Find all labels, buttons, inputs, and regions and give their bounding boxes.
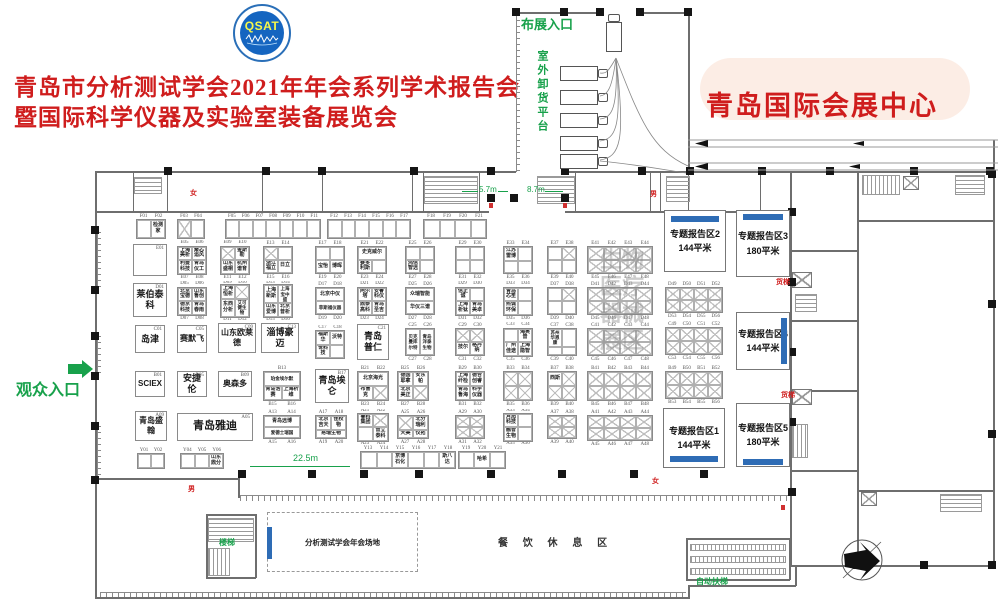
booth-cell: 珀金埃尔默	[264, 372, 300, 386]
booth-cell	[316, 247, 330, 260]
booth-cell	[470, 427, 484, 438]
booth-cell	[636, 386, 652, 400]
booth-cell	[620, 416, 636, 428]
event-title-line2: 暨国际科学仪器及实验室装备展览会	[14, 98, 398, 132]
booth-block: E37E38E39E40	[547, 240, 577, 280]
booth-id: C13	[288, 325, 296, 331]
booth-cell	[424, 452, 440, 468]
booth-grid: 西斯	[547, 371, 577, 401]
booth-id-labels: B53B54B55B56	[665, 399, 723, 405]
booth-cell: 艾可健生物	[235, 299, 249, 317]
booth-cell	[195, 454, 209, 468]
booth-cell: 北京宝德	[178, 288, 192, 302]
booth-grid: 苏州华恩康	[547, 328, 577, 356]
structural-column	[318, 167, 326, 175]
booth-cell	[372, 260, 386, 274]
event-title-line1: 青岛市分析测试学会2021年年会系列学术报告会	[14, 68, 520, 102]
booth-cell	[181, 454, 195, 468]
booth-cell	[330, 247, 344, 260]
booth-block: D05D06北京宝德山东鲁创德京科技青岛春雨D07D08	[177, 281, 207, 321]
booth-cell	[588, 428, 604, 440]
booth-cell: 江苏雷博	[504, 247, 518, 261]
booth-id: E01	[156, 246, 164, 252]
booth-block: F05F06F07F08F09F10F11	[225, 213, 321, 239]
booth-grid	[587, 415, 653, 441]
booth-id: D01	[155, 285, 164, 291]
booth-cell	[518, 386, 532, 400]
structural-column	[487, 470, 495, 478]
stage-bar	[743, 459, 783, 465]
map-label: 货梯	[776, 277, 790, 287]
booth-cell	[636, 428, 652, 440]
partition-wall	[97, 426, 101, 478]
wall	[95, 597, 690, 599]
wall	[789, 538, 791, 580]
booth-cell: 西斯	[548, 372, 562, 386]
booth-cell	[694, 372, 708, 385]
booth-grid	[665, 327, 723, 355]
booth-block: E05E06上海美析聚芯追风利曼科技青岛仪工E07E08	[177, 240, 207, 280]
booth-cell	[666, 300, 680, 312]
partition-wall	[97, 232, 101, 288]
booth-cell	[694, 288, 708, 300]
stair-hatch	[690, 568, 786, 575]
wall	[795, 565, 797, 586]
booth-block: Y01Y02	[137, 447, 165, 469]
booth-cell	[620, 372, 636, 386]
booth-block: C33C34海奥普广州佳途上海隐智C35C36	[503, 322, 533, 362]
structural-column	[684, 8, 692, 16]
booth-cell	[470, 260, 484, 273]
booth-cell: 沃特	[330, 331, 344, 345]
map-label: 女	[652, 476, 659, 486]
booth-cell	[330, 345, 344, 359]
booth-name: SCIEX	[136, 379, 164, 389]
structural-column	[920, 561, 928, 569]
booth-cell	[137, 220, 151, 238]
booth-cell	[604, 428, 620, 440]
booth-cell: 海奥普	[518, 329, 532, 343]
wall	[262, 172, 263, 211]
booth-block: A21A22睿科集团普立泰科A23A24	[357, 409, 389, 445]
booth-cell	[342, 220, 356, 238]
booth-cell	[178, 220, 191, 238]
structural-column	[638, 167, 646, 175]
booth-name: 青岛埃仑	[316, 375, 348, 397]
booth-id-labels: B39B40	[547, 401, 577, 407]
booth-cell: 福斯华	[316, 331, 330, 345]
wall	[167, 172, 168, 211]
booth-name: 奥森多	[221, 379, 249, 389]
booth-cell	[548, 416, 562, 427]
booth-id-labels: D15D16	[263, 318, 293, 321]
booth-cell: 鸿信智远	[406, 260, 420, 274]
booth-grid: 上海美析聚芯追风利曼科技青岛仪工	[177, 246, 207, 275]
zone-name: 专题报告区3	[738, 229, 788, 243]
elevator-box	[792, 389, 812, 405]
stair-hatch	[690, 556, 786, 563]
booth-cell	[518, 288, 532, 302]
booth-block: D49D50D51D52D53D54D55D56	[665, 281, 723, 319]
annual-meeting-area: 分析测试学会年会场地	[267, 512, 418, 572]
floor-plan-page: QSAT 青岛市分析测试学会2021年年会系列学术报告会 暨国际科学仪器及实验室…	[0, 0, 1000, 616]
booth-block: C37C38苏州华恩康C39C40	[547, 322, 577, 362]
booth-cell	[562, 260, 576, 273]
booth-cell: 北京中仪	[316, 288, 344, 301]
zone-name: 专题报告区1	[669, 424, 719, 438]
booth-block: F18F19F20F21	[423, 213, 487, 239]
watermark-line: 医疗	[590, 273, 654, 300]
booth-id: A05	[241, 415, 250, 421]
booth-cell	[708, 385, 722, 398]
booth-cell: 青岛圣吉	[372, 301, 386, 315]
booth-cell	[548, 386, 562, 400]
elevator-box	[861, 492, 877, 506]
booth-cell: 广州佳途	[504, 342, 518, 356]
structural-column	[988, 300, 996, 308]
booth-id-labels: A15A16	[263, 439, 301, 445]
booth-id-labels: B35B36	[503, 401, 533, 407]
booth-cell: 山东爱博	[264, 303, 278, 317]
booth-cell: 菲斯福仪器	[316, 301, 344, 314]
booth-name: 青岛普仁	[358, 331, 388, 353]
map-label: 室外卸货平台	[534, 50, 550, 134]
booth-cell	[666, 328, 680, 341]
booth-cell	[708, 288, 722, 300]
booth-cell	[604, 416, 620, 428]
booth-cell	[471, 220, 487, 238]
booth-name: 青岛雅迪	[191, 420, 239, 433]
structural-column	[410, 167, 418, 175]
booth-cell: 上海美析	[178, 247, 192, 261]
booth-cell: 博晖	[330, 260, 344, 273]
map-label: 餐 饮 休 息 区	[498, 534, 613, 549]
booth-cell	[562, 427, 576, 438]
booth-cell	[191, 220, 204, 238]
booth-id-labels: D11D12	[220, 318, 250, 321]
booth-cell: 仪拓	[413, 430, 428, 439]
map-label: 女	[190, 188, 197, 198]
booth-cell: 信正诚	[456, 288, 470, 302]
booth-id: C09	[245, 325, 253, 331]
booth-cell: 众瑞智能	[406, 288, 434, 301]
booth-cell	[620, 428, 636, 440]
booth-block: Y04Y05Y06山东鼎分	[180, 447, 224, 469]
booth-block: D21D22阿尔塔安睿科仪鼎泰高科青岛圣吉D23D24	[357, 281, 387, 321]
map-label: 自动扶梯	[696, 576, 728, 587]
booth-block: C17C18福斯华沃特世科技	[315, 325, 345, 359]
booth-cell	[666, 341, 680, 354]
booth-block: C29C30技尔格丹纳C31C32	[455, 322, 485, 362]
booth-block: D09D10上海恒析东西分析艾可健生物D11D12	[220, 281, 250, 321]
structural-column	[510, 194, 518, 202]
structural-column	[512, 8, 520, 16]
structural-column	[826, 167, 834, 175]
booth-block: B33B34B35B36	[503, 365, 533, 407]
partition-wall	[516, 14, 520, 172]
booth-block: C49C50C51C52C53C54C55C56	[665, 321, 723, 361]
booth-large: E01	[133, 244, 167, 276]
stair-hatch	[666, 176, 690, 202]
structural-column	[988, 561, 996, 569]
booth-cell	[562, 247, 576, 260]
booth-id-labels: B45B46B47B48	[587, 401, 653, 407]
booth-cell	[456, 260, 470, 273]
booth-cell: 贝克曼库尔特	[406, 329, 420, 355]
structural-column	[487, 194, 495, 202]
booth-grid: 北京中仪菲斯福仪器	[315, 287, 345, 315]
booth-cell	[694, 328, 708, 341]
wall	[686, 538, 688, 580]
booth-grid	[455, 415, 485, 439]
booth-grid: 贝克曼库尔特青岛洋泰生物	[405, 328, 435, 356]
map-label: 8.7m	[527, 185, 545, 194]
booth-cell	[373, 414, 388, 428]
structural-column	[91, 332, 99, 340]
booth-cell: 京博石化	[392, 452, 408, 468]
booth-cell: 德合创睿	[470, 372, 484, 386]
wall	[412, 172, 413, 211]
wall	[206, 577, 256, 579]
booth-cell: 赛多利斯	[358, 260, 372, 274]
booth-id-labels: C45C46C47C48	[587, 356, 653, 362]
booth-cell	[518, 301, 532, 315]
booth-cell	[604, 386, 620, 400]
zone-name: 专题报告区2	[670, 227, 720, 241]
booth-cell: 月旭科技	[504, 414, 518, 428]
wall	[640, 12, 689, 14]
stage-bar	[671, 216, 719, 222]
booth-block: E13E14浙江福立日立E15E16	[263, 240, 293, 280]
booth-cell	[253, 220, 266, 238]
booth-cell: 上海宝中盛	[278, 285, 292, 303]
qsat-logo-icon: QSAT	[233, 4, 291, 62]
booth-cell: 哈希	[474, 452, 489, 468]
booth-grid	[177, 219, 205, 239]
map-label: 楼梯	[219, 537, 235, 548]
booth-grid	[665, 287, 723, 313]
booth-cell	[470, 247, 484, 260]
booth-grid: 睿科集团普立泰科	[357, 413, 389, 442]
booth-id: A09	[155, 413, 164, 419]
wall	[688, 12, 690, 172]
booth-cell: 上海恒析	[221, 285, 235, 299]
booth-grid: 山东鼎分	[180, 453, 224, 469]
booth-cell	[548, 347, 562, 355]
booth-cell	[708, 372, 722, 385]
booth-cell: 北京普析	[278, 303, 292, 317]
booth-id-labels: E31E32	[455, 274, 485, 280]
booth-grid: 史克威尔赛多利斯	[357, 246, 387, 274]
fire-equipment-mark	[563, 203, 567, 208]
booth-id-labels: E35E36	[503, 274, 533, 280]
booth-cell	[708, 300, 722, 312]
booth-cell	[420, 260, 434, 274]
booth-cell	[694, 341, 708, 354]
wall	[255, 514, 257, 578]
structural-column	[91, 422, 99, 430]
wall	[206, 514, 256, 516]
booth-grid: 福斯华沃特世科技	[315, 330, 345, 359]
booth-id-labels: D23D24	[357, 316, 387, 322]
structural-column	[238, 470, 246, 478]
booth-cell	[328, 220, 342, 238]
booth-block: A25A26北分瑞利天美仪拓A27A28	[397, 409, 429, 445]
booth-id-labels: E15E16	[263, 274, 293, 280]
booth-id-labels: D31D32	[455, 316, 485, 322]
stair-hatch	[955, 175, 985, 195]
truck-icon	[560, 154, 598, 169]
booth-id: C21	[378, 326, 386, 332]
booth-cell	[562, 301, 576, 314]
booth-grid: 浙江福立日立	[263, 246, 293, 274]
wall	[790, 250, 857, 252]
booth-cell	[456, 247, 470, 260]
booth-grid: 上海恒析东西分析艾可健生物	[220, 284, 250, 317]
booth-cell	[266, 220, 279, 238]
booth-grid	[423, 219, 487, 239]
booth-cell	[470, 416, 484, 427]
booth-block: B49B50B51B52B53B54B55B56	[665, 365, 723, 405]
booth-grid	[327, 219, 411, 239]
structural-column	[596, 8, 604, 16]
booth-cell	[221, 247, 235, 261]
booth-grid: 宝怡博晖	[315, 246, 345, 274]
booth-cell: 上海隐智	[518, 342, 532, 356]
structural-column	[853, 561, 861, 569]
stair-hatch	[134, 177, 162, 194]
booth-id-labels: C31C32	[455, 356, 485, 362]
booth-cell	[588, 372, 604, 386]
booth-cell	[562, 386, 576, 400]
road-lines	[688, 140, 998, 170]
wall	[686, 538, 790, 540]
structural-column	[415, 470, 423, 478]
partition-wall	[100, 592, 686, 597]
booth-id-labels: E19E20	[315, 274, 345, 280]
booth-cell	[361, 452, 377, 468]
booth-block: A41A42A43A44A45A46A47A48	[587, 409, 653, 447]
truck-icon	[560, 66, 598, 81]
booth-id: C05	[196, 327, 204, 333]
structural-column	[686, 167, 694, 175]
booth-block: B13珀金埃尔默青岛浩赛上海析维B15B16	[263, 365, 301, 407]
booth-cell	[235, 285, 249, 299]
wall	[95, 171, 516, 173]
entrance-arrow-tip-icon	[82, 360, 93, 378]
elevator-box	[903, 176, 919, 190]
booth-block: B25B26德国耶拿安东帕北京美正B27B28	[397, 365, 429, 407]
booth-large: B05安捷伦	[177, 371, 207, 397]
watermark-line: 展区	[590, 327, 654, 354]
booth-large: C09山东欧莱德	[218, 323, 256, 353]
booth-cell	[369, 220, 383, 238]
truck-cab-icon	[598, 139, 608, 148]
booth-block: E09E10金斯勒山东盛桐杭州谱育E11E12	[220, 240, 250, 280]
booth-cell: 青岛浩赛	[264, 386, 282, 400]
booth-large: D01莱伯泰科	[133, 283, 167, 317]
booth-id-labels: D27D28	[405, 315, 435, 321]
wall	[790, 171, 792, 566]
booth-id-labels: A45A46A47A48	[587, 441, 653, 447]
booth-cell: 杭州谱育	[235, 260, 249, 274]
booth-cell	[420, 247, 434, 260]
booth-cell	[680, 385, 694, 398]
map-label: 男	[650, 189, 657, 199]
qsat-logo-inner: QSAT	[240, 11, 284, 55]
booth-cell: 山东鲁创	[192, 288, 206, 302]
truck-fan-curves	[600, 58, 688, 173]
booth-cell	[588, 416, 604, 428]
booth-grid: 信正诚上海析钛青岛美卓	[455, 287, 485, 316]
booth-cell: 普立泰科	[373, 427, 388, 441]
booth-name: 莱伯泰科	[134, 289, 166, 311]
wall	[322, 172, 323, 211]
truck-icon	[560, 113, 598, 128]
booth-cell: 青岛洋泰生物	[420, 329, 434, 355]
booth-block: D33D34青岛芯笙熙诚环保D35D36	[503, 281, 533, 321]
booth-cell: 北京吉天	[316, 416, 331, 430]
booth-cell: 青岛美卓	[470, 301, 484, 315]
qsat-logo-text: QSAT	[245, 20, 279, 32]
north-arrow-icon	[842, 540, 882, 580]
booth-grid	[547, 287, 577, 315]
booth-grid: 阿尔塔安睿科仪鼎泰高科青岛圣吉	[357, 287, 387, 316]
booth-cell	[226, 220, 239, 238]
booth-cell: 上海纤检	[456, 372, 470, 386]
qsat-waveform-icon	[245, 32, 279, 46]
zone-area: 144平米	[678, 241, 711, 255]
booth-cell	[620, 386, 636, 400]
structural-column	[758, 167, 766, 175]
stage-bar	[743, 214, 783, 220]
booth-cell: 布鲁克	[358, 386, 373, 400]
booth-cell	[358, 427, 373, 441]
measure-line	[462, 191, 478, 192]
booth-cell	[588, 386, 604, 400]
booth-cell	[293, 220, 306, 238]
booth-cell	[424, 220, 440, 238]
booth-cell: 聚芯追风	[192, 247, 206, 261]
booth-cell	[383, 220, 397, 238]
booth-grid: 检测家	[136, 219, 166, 239]
booth-cell	[562, 347, 576, 355]
booth-cell	[490, 452, 505, 468]
structural-column	[988, 430, 996, 438]
wall	[575, 172, 576, 211]
booth-id-labels: C35C36	[503, 357, 533, 363]
booth-cell: 格丹纳	[470, 342, 484, 356]
booth-cell	[307, 220, 320, 238]
booth-cell	[680, 288, 694, 300]
booth-large: C01岛津	[135, 325, 165, 353]
booth-large: A09青岛盛翰	[135, 411, 167, 441]
booth-cell	[548, 288, 562, 301]
booth-grid	[665, 371, 723, 399]
road-arrow-icons	[695, 140, 864, 170]
stair-hatch	[792, 424, 808, 458]
booth-cell: 科学仪器	[470, 386, 484, 400]
booth-block: D17D18北京中仪菲斯福仪器D19D20	[315, 281, 345, 321]
map-label: 22.5m	[293, 453, 318, 463]
booth-cell	[455, 220, 471, 238]
truck-cab-icon	[608, 14, 620, 22]
stair-hatch	[690, 544, 786, 551]
zone-area: 180平米	[746, 435, 779, 449]
booth-cell: 世科技	[316, 345, 330, 359]
booth-cell: 爱德士瑞国	[264, 427, 300, 438]
wall	[857, 171, 859, 566]
